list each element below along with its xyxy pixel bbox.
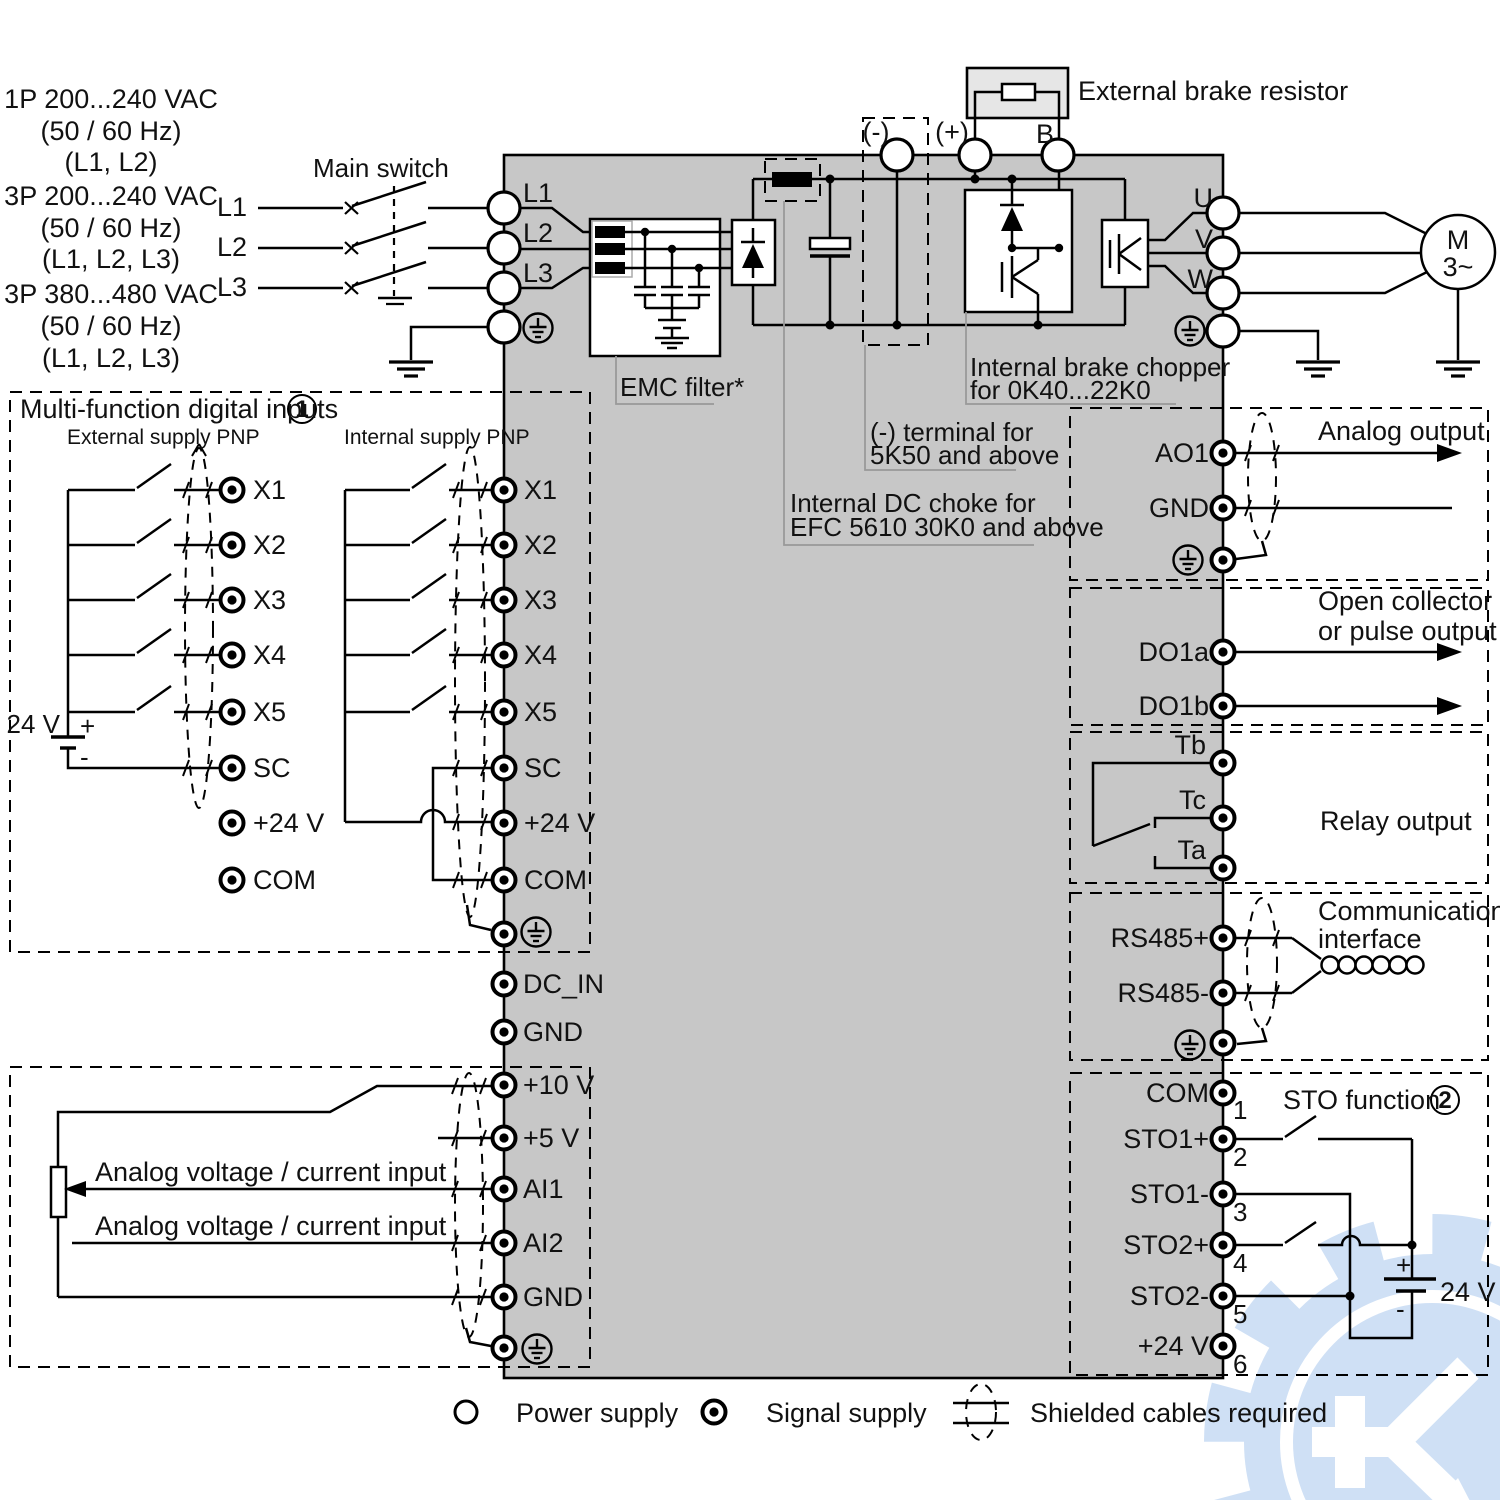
terminal-sto-COM: [1212, 1082, 1235, 1105]
label-GND-dc: GND: [523, 1017, 583, 1047]
external-supply-label: External supply PNP: [67, 426, 260, 449]
label-Tb: Tb: [1174, 730, 1206, 760]
terminal-label-U: U: [1194, 183, 1214, 213]
terminal-X4: [493, 644, 516, 667]
analog-inputs: [51, 1073, 493, 1346]
brake-b-label: B: [1036, 119, 1054, 149]
ext-label-X2: X2: [253, 530, 286, 560]
terminal-X2: [493, 534, 516, 557]
terminal-AI1: [493, 1178, 516, 1201]
terminal-GND-ao: [1212, 497, 1235, 520]
twisted-pair-icon: [1322, 957, 1424, 974]
int-label-X2: X2: [524, 530, 557, 560]
terminal-AO1: [1212, 442, 1235, 465]
int-label-24v: +24 V: [524, 808, 595, 838]
ext-label-X3: X3: [253, 585, 286, 615]
terminal-ext-X4: [221, 644, 244, 667]
spec1-phases: (L1, L2): [64, 147, 157, 177]
terminal-label-V: V: [1195, 224, 1213, 254]
internal-shield-icon: [455, 447, 485, 917]
terminal-pe-comm: [1212, 1032, 1235, 1055]
ext-label-X4: X4: [253, 640, 286, 670]
sto-pin-1: 1: [1233, 1095, 1247, 1125]
ext-battery-label: 24 V: [7, 709, 61, 739]
brake-chopper: [965, 179, 1072, 325]
terminal-10v: [493, 1074, 516, 1097]
terminal-DO1a: [1212, 641, 1235, 664]
label-RS485-neg: RS485-: [1117, 978, 1209, 1008]
ext-label-X1: X1: [253, 475, 286, 505]
int-label-SC: SC: [524, 753, 562, 783]
label-AO1: AO1: [1155, 438, 1209, 468]
terminal-L2: [488, 232, 520, 264]
diagram-canvas: 1P 200...240 VAC (50 / 60 Hz) (L1, L2) 3…: [0, 0, 1500, 1500]
spec3-hz: (50 / 60 Hz): [40, 311, 181, 341]
terminal-Ta: [1212, 857, 1235, 880]
phase-l3-label: L3: [217, 272, 247, 302]
power-supply-icon: [455, 1401, 477, 1423]
analog-note-2: Analog voltage / current input: [95, 1211, 447, 1241]
spec1-volts: 1P 200...240 VAC: [4, 84, 218, 114]
comm-title-1: Communication: [1318, 896, 1500, 926]
digital-inputs-external: [51, 444, 221, 808]
int-label-X5: X5: [524, 697, 557, 727]
label-Tc: Tc: [1179, 785, 1206, 815]
terminal-5v: [493, 1127, 516, 1150]
label-sto-24v: +24 V: [1138, 1331, 1209, 1361]
note-badge-1: 1: [295, 396, 308, 423]
terminal-X1: [493, 479, 516, 502]
ao-shield-icon: [1248, 413, 1276, 541]
label-RS485-pos: RS485+: [1111, 923, 1209, 953]
label-STO1-pos: STO1+: [1123, 1124, 1209, 1154]
terminal-ext-X1: [221, 479, 244, 502]
terminal-label-L1: L1: [523, 178, 553, 208]
ai1-arrow-icon: [64, 1181, 86, 1197]
terminal-ext-X2: [221, 534, 244, 557]
digital-inputs-internal: [345, 447, 493, 930]
terminal-pe-input: [488, 311, 520, 343]
sto-pin-4: 4: [1233, 1248, 1247, 1278]
brake-resistor-label: External brake resistor: [1078, 76, 1348, 106]
terminal-L1: [488, 192, 520, 224]
label-5v: +5 V: [523, 1123, 579, 1153]
resistor-icon: [1002, 84, 1035, 100]
label-STO2-pos: STO2+: [1123, 1230, 1209, 1260]
legend-power-label: Power supply: [516, 1398, 679, 1428]
analog-output-title: Analog output: [1318, 416, 1485, 446]
dc-pos-label: (+): [935, 117, 969, 147]
terminal-sto-24v: [1212, 1335, 1235, 1358]
emc-filter-label: EMC filter*: [620, 372, 744, 402]
comm-shield-icon: [1247, 898, 1277, 1028]
terminal-label-L3: L3: [523, 258, 553, 288]
output-earth-icon: [1296, 362, 1340, 376]
neg-note-line2: 5K50 and above: [870, 440, 1059, 470]
ext-battery-plus: +: [80, 711, 95, 741]
potentiometer-icon: [51, 1167, 66, 1217]
legend-signal-label: Signal supply: [766, 1398, 927, 1428]
terminal-Tb: [1212, 752, 1235, 775]
terminal-ext-X3: [221, 589, 244, 612]
terminal-STO2-pos: [1212, 1234, 1235, 1257]
chopper-note-line2: for 0K40...22K0: [970, 375, 1151, 405]
int-label-COM: COM: [524, 865, 587, 895]
spec2-phases: (L1, L2, L3): [42, 244, 180, 274]
ext-label-X5: X5: [253, 697, 286, 727]
spec3-volts: 3P 380...480 VAC: [4, 279, 218, 309]
spec1-hz: (50 / 60 Hz): [40, 116, 181, 146]
ext-battery-minus: -: [80, 742, 89, 772]
label-AI2: AI2: [523, 1228, 564, 1258]
open-collector-output: [1234, 643, 1462, 715]
terminal-label-W: W: [1188, 264, 1214, 294]
ext-label-24v: +24 V: [253, 808, 324, 838]
mains-input: [258, 182, 488, 376]
dc-choke-inductor: [772, 172, 812, 187]
terminal-DO1b: [1212, 695, 1235, 718]
terminal-Tc: [1212, 807, 1235, 830]
sto-battery-plus: +: [1396, 1250, 1411, 1280]
note-badge-2: 2: [1438, 1087, 1451, 1114]
label-STO1-neg: STO1-: [1130, 1179, 1209, 1209]
spec3-phases: (L1, L2, L3): [42, 343, 180, 373]
terminal-pe-analog: [493, 1337, 516, 1360]
terminal-GND-analog: [493, 1286, 516, 1309]
terminal-STO1-pos: [1212, 1128, 1235, 1151]
terminal-X5: [493, 701, 516, 724]
terminal-pe-digital: [493, 923, 516, 946]
sto-pin-3: 3: [1233, 1197, 1247, 1227]
terminal-DC-IN: [493, 973, 516, 996]
sto-pin-6: 6: [1233, 1349, 1247, 1379]
label-STO2-neg: STO2-: [1130, 1281, 1209, 1311]
wiring-diagram: 1P 200...240 VAC (50 / 60 Hz) (L1, L2) 3…: [0, 0, 1500, 1500]
spec2-hz: (50 / 60 Hz): [40, 213, 181, 243]
label-sto-COM: COM: [1146, 1078, 1209, 1108]
label-GND-analog: GND: [523, 1282, 583, 1312]
internal-supply-label: Internal supply PNP: [344, 426, 530, 449]
sto-pin-2: 2: [1233, 1142, 1247, 1172]
external-shield-icon: [185, 448, 213, 808]
terminal-pe-output: [1207, 315, 1239, 347]
mains-earth-icon: [389, 362, 433, 376]
terminal-STO1-neg: [1212, 1183, 1235, 1206]
sto-title: STO function: [1283, 1085, 1440, 1115]
ext-label-COM: COM: [253, 865, 316, 895]
switch-cross-marks: [345, 202, 358, 294]
digital-inputs-title: Multi-function digital inputs: [20, 394, 338, 424]
analog-note-1: Analog voltage / current input: [95, 1157, 447, 1187]
phase-l1-label: L1: [217, 192, 247, 222]
signal-supply-icon: [703, 1401, 726, 1424]
label-10v: +10 V: [523, 1070, 594, 1100]
phase-l2-label: L2: [217, 232, 247, 262]
oc-title-1: Open collector: [1318, 586, 1492, 616]
label-DO1a: DO1a: [1138, 637, 1210, 667]
terminal-STO2-neg: [1212, 1285, 1235, 1308]
terminal-ext-24v: [221, 812, 244, 835]
int-label-X4: X4: [524, 640, 557, 670]
main-switch-label: Main switch: [313, 153, 449, 183]
sto-pin-5: 5: [1233, 1299, 1247, 1329]
terminal-L3: [488, 272, 520, 304]
terminal-ext-SC: [221, 757, 244, 780]
motor-phase-label: 3~: [1443, 252, 1474, 282]
oc-title-2: or pulse output: [1318, 616, 1497, 646]
legend-shield-label: Shielded cables required: [1030, 1398, 1327, 1428]
choke-note-line2: EFC 5610 30K0 and above: [790, 512, 1104, 542]
ext-label-SC: SC: [253, 753, 291, 783]
terminal-24v: [493, 812, 516, 835]
terminal-X3: [493, 589, 516, 612]
terminal-SC: [493, 757, 516, 780]
sto-battery-label: 24 V: [1440, 1277, 1496, 1307]
terminal-COM: [493, 869, 516, 892]
int-label-X1: X1: [524, 475, 557, 505]
label-DC-IN: DC_IN: [523, 969, 604, 999]
watermark-gear-logo: [1226, 1236, 1500, 1500]
int-label-X3: X3: [524, 585, 557, 615]
label-AI1: AI1: [523, 1174, 564, 1204]
terminal-AI2: [493, 1232, 516, 1255]
comm-title-2: interface: [1318, 924, 1422, 954]
motor-earth-icon: [1436, 362, 1480, 376]
terminal-label-L2: L2: [523, 218, 553, 248]
terminal-ext-COM: [221, 869, 244, 892]
sto-battery-minus: -: [1396, 1294, 1405, 1324]
label-GND-ao: GND: [1149, 493, 1209, 523]
label-Ta: Ta: [1177, 835, 1207, 865]
relay-title: Relay output: [1320, 806, 1472, 836]
terminal-GND-dc: [493, 1021, 516, 1044]
shielded-cable-icon: [953, 1384, 1009, 1440]
label-DO1b: DO1b: [1138, 691, 1209, 721]
terminal-pe-ao: [1212, 549, 1235, 572]
terminal-RS485-neg: [1212, 982, 1235, 1005]
dc-neg-label: (-): [863, 117, 890, 147]
terminal-RS485-pos: [1212, 927, 1235, 950]
motor-m-label: M: [1447, 225, 1470, 255]
terminal-ext-X5: [221, 701, 244, 724]
spec2-volts: 3P 200...240 VAC: [4, 181, 218, 211]
